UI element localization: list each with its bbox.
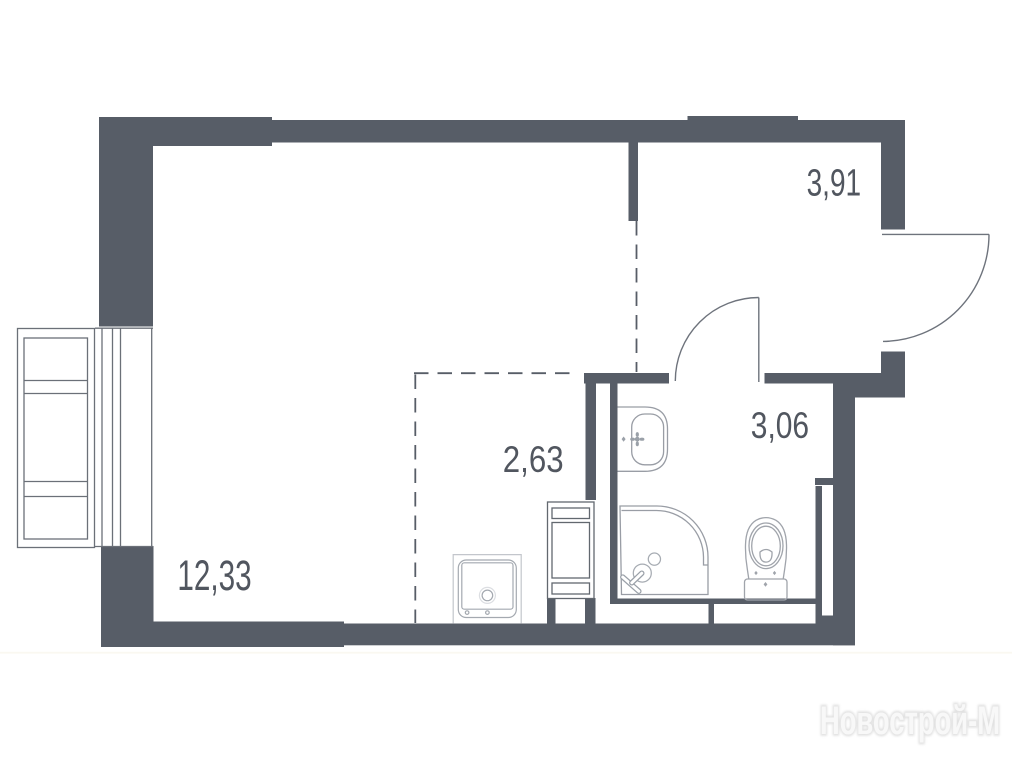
svg-text:2,63: 2,63 xyxy=(503,439,564,480)
svg-text:3,06: 3,06 xyxy=(751,405,809,446)
svg-text:Новострой-М: Новострой-М xyxy=(820,699,1000,743)
svg-text:12,33: 12,33 xyxy=(177,552,251,600)
svg-text:3,91: 3,91 xyxy=(807,163,862,205)
